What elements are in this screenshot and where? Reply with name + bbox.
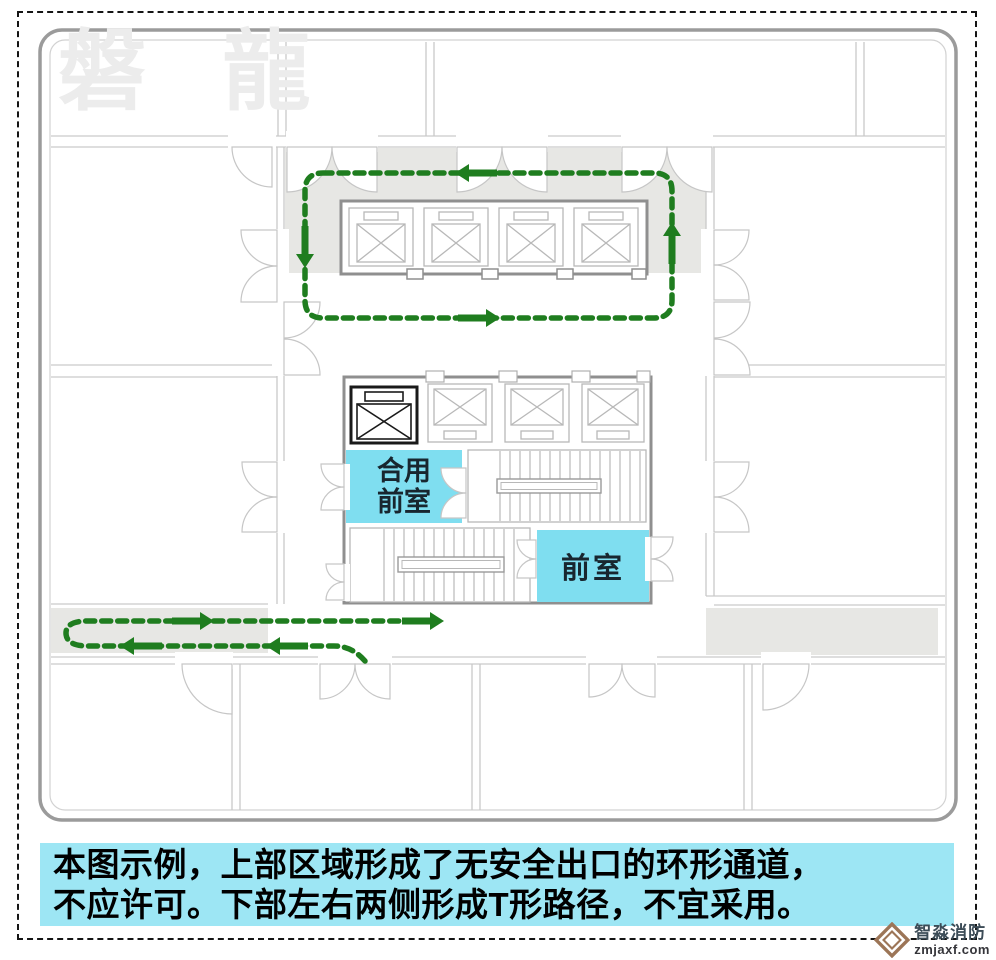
shared-lobby-label-line2: 前室	[377, 487, 431, 518]
lobby-label: 前室	[537, 530, 649, 602]
elevator-bank-top	[341, 201, 647, 279]
brand-domain: zmjaxf.com	[914, 943, 990, 956]
brand-name: 智淼消防	[914, 924, 990, 941]
screenshot-root: 磐 龍 合用 前室 前室 本图示例，上部区域形成了无安全出口的环形通道， 不应许…	[0, 0, 996, 960]
watermark: 磐 龍	[58, 28, 336, 116]
brand-logo-text: 智淼消防 zmjaxf.com	[914, 924, 990, 956]
diamond-logo-icon	[874, 922, 910, 958]
brand-logo: 智淼消防 zmjaxf.com	[874, 922, 990, 958]
floor-plan-graphics	[0, 0, 996, 960]
stair-lower	[350, 528, 530, 602]
caption-bar: 本图示例，上部区域形成了无安全出口的环形通道， 不应许可。下部左右两侧形成T形路…	[40, 843, 954, 926]
shared-lobby-label: 合用 前室	[346, 450, 462, 523]
shared-lobby-label-line1: 合用	[377, 456, 431, 487]
caption-line-2: 不应许可。下部左右两侧形成T形路径，不宜采用。	[53, 885, 954, 925]
lobby-label-text: 前室	[561, 545, 625, 587]
caption-line-1: 本图示例，上部区域形成了无安全出口的环形通道，	[53, 845, 954, 885]
stair-upper	[468, 450, 646, 522]
